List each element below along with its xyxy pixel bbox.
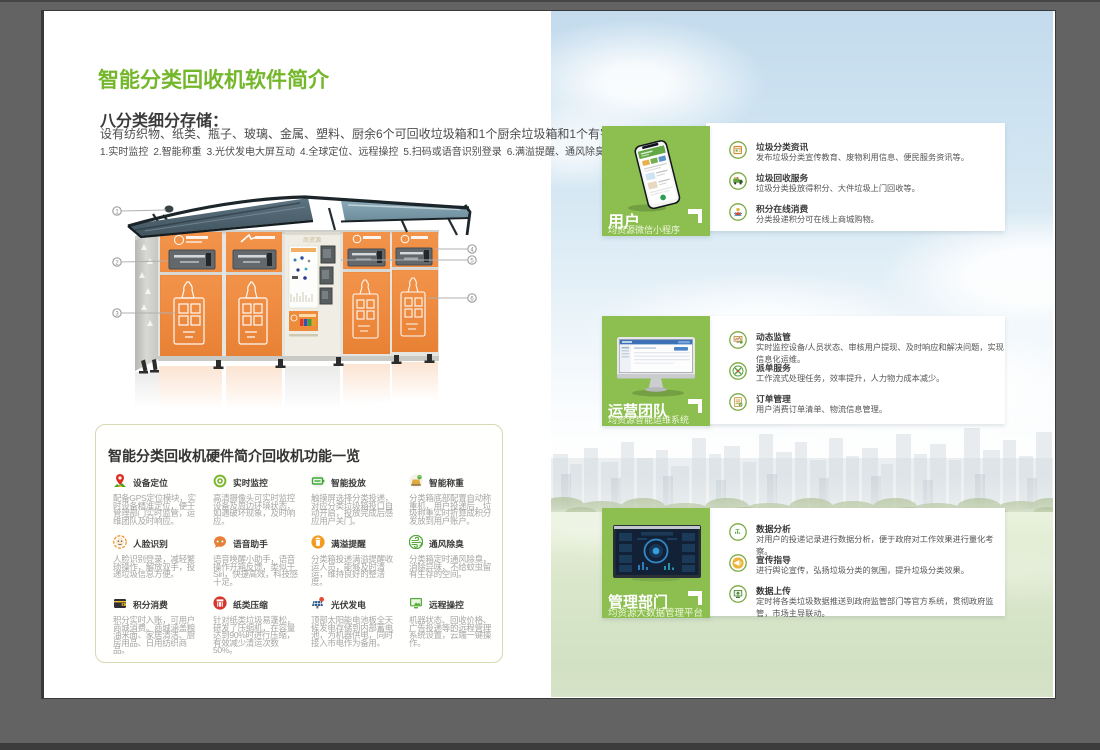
svg-text:尚资源: 尚资源 [303,236,321,244]
